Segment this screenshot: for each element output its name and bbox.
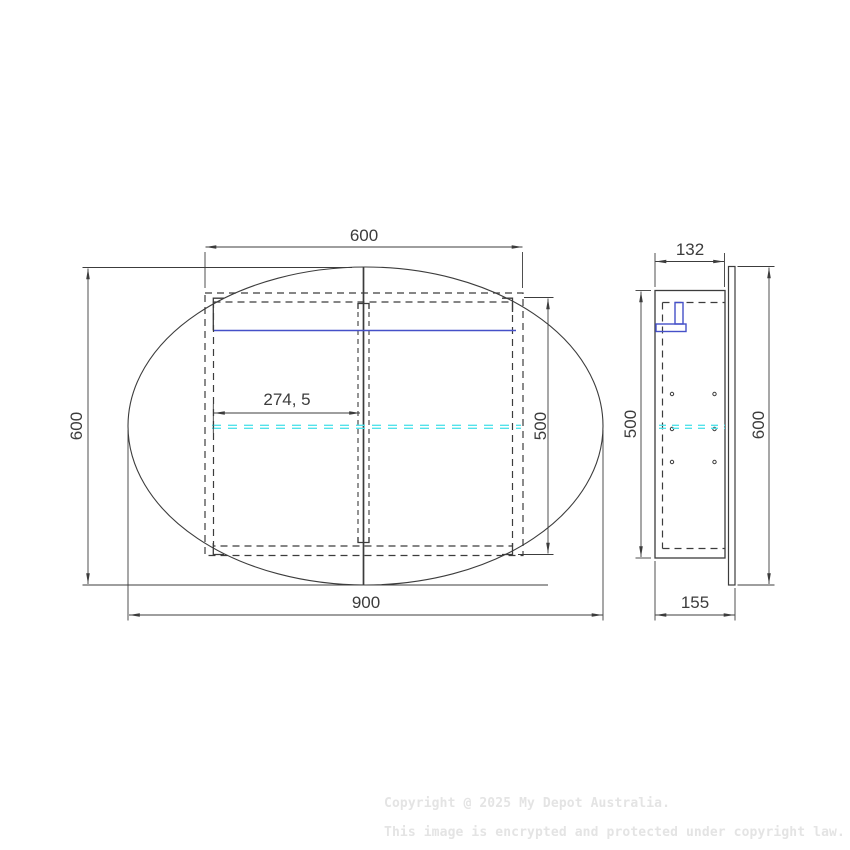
side-door-panel — [729, 267, 736, 586]
dim-side-overall-depth-label: 155 — [681, 593, 709, 612]
dim-side-depth: 132 — [655, 240, 725, 287]
dim-side-depth-label: 132 — [676, 240, 704, 259]
dim-opening-width-label: 600 — [350, 226, 378, 245]
glass-shelf-centerline — [212, 425, 521, 428]
dim-shelf-offset-label: 274, 5 — [263, 390, 310, 409]
dim-side-overall-depth: 155 — [655, 561, 735, 621]
front-view-drawing: 600 600 500 900 274, 5 — [67, 226, 603, 621]
dim-overall-width: 900 — [128, 430, 603, 621]
dim-overall-height: 600 — [67, 268, 548, 586]
dim-overall-height-label: 600 — [67, 412, 86, 440]
side-view-drawing: 132 500 600 155 — [621, 240, 775, 621]
dim-overall-width-label: 900 — [352, 593, 380, 612]
side-shelf-bracket — [656, 303, 686, 332]
watermark-copyright-line: Copyright @ 2025 My Depot Australia. — [384, 796, 670, 811]
dim-side-door-height-label: 600 — [749, 411, 768, 439]
dim-shelf-offset: 274, 5 — [213, 390, 360, 433]
technical-drawing-page: 600 600 500 900 274, 5 — [0, 0, 850, 850]
dim-cabinet-height-label: 500 — [531, 412, 550, 440]
dim-side-cabinet-height-label: 500 — [621, 410, 640, 438]
dim-side-door-height: 600 — [738, 267, 775, 586]
watermark-notice-line: This image is encrypted and protected un… — [384, 825, 845, 840]
side-cabinet-body-outline — [655, 291, 725, 559]
cabinet-drawing: 600 600 500 900 274, 5 — [0, 0, 850, 850]
side-glass-shelf-centerline — [659, 425, 725, 428]
dim-side-cabinet-height: 500 — [621, 291, 651, 559]
